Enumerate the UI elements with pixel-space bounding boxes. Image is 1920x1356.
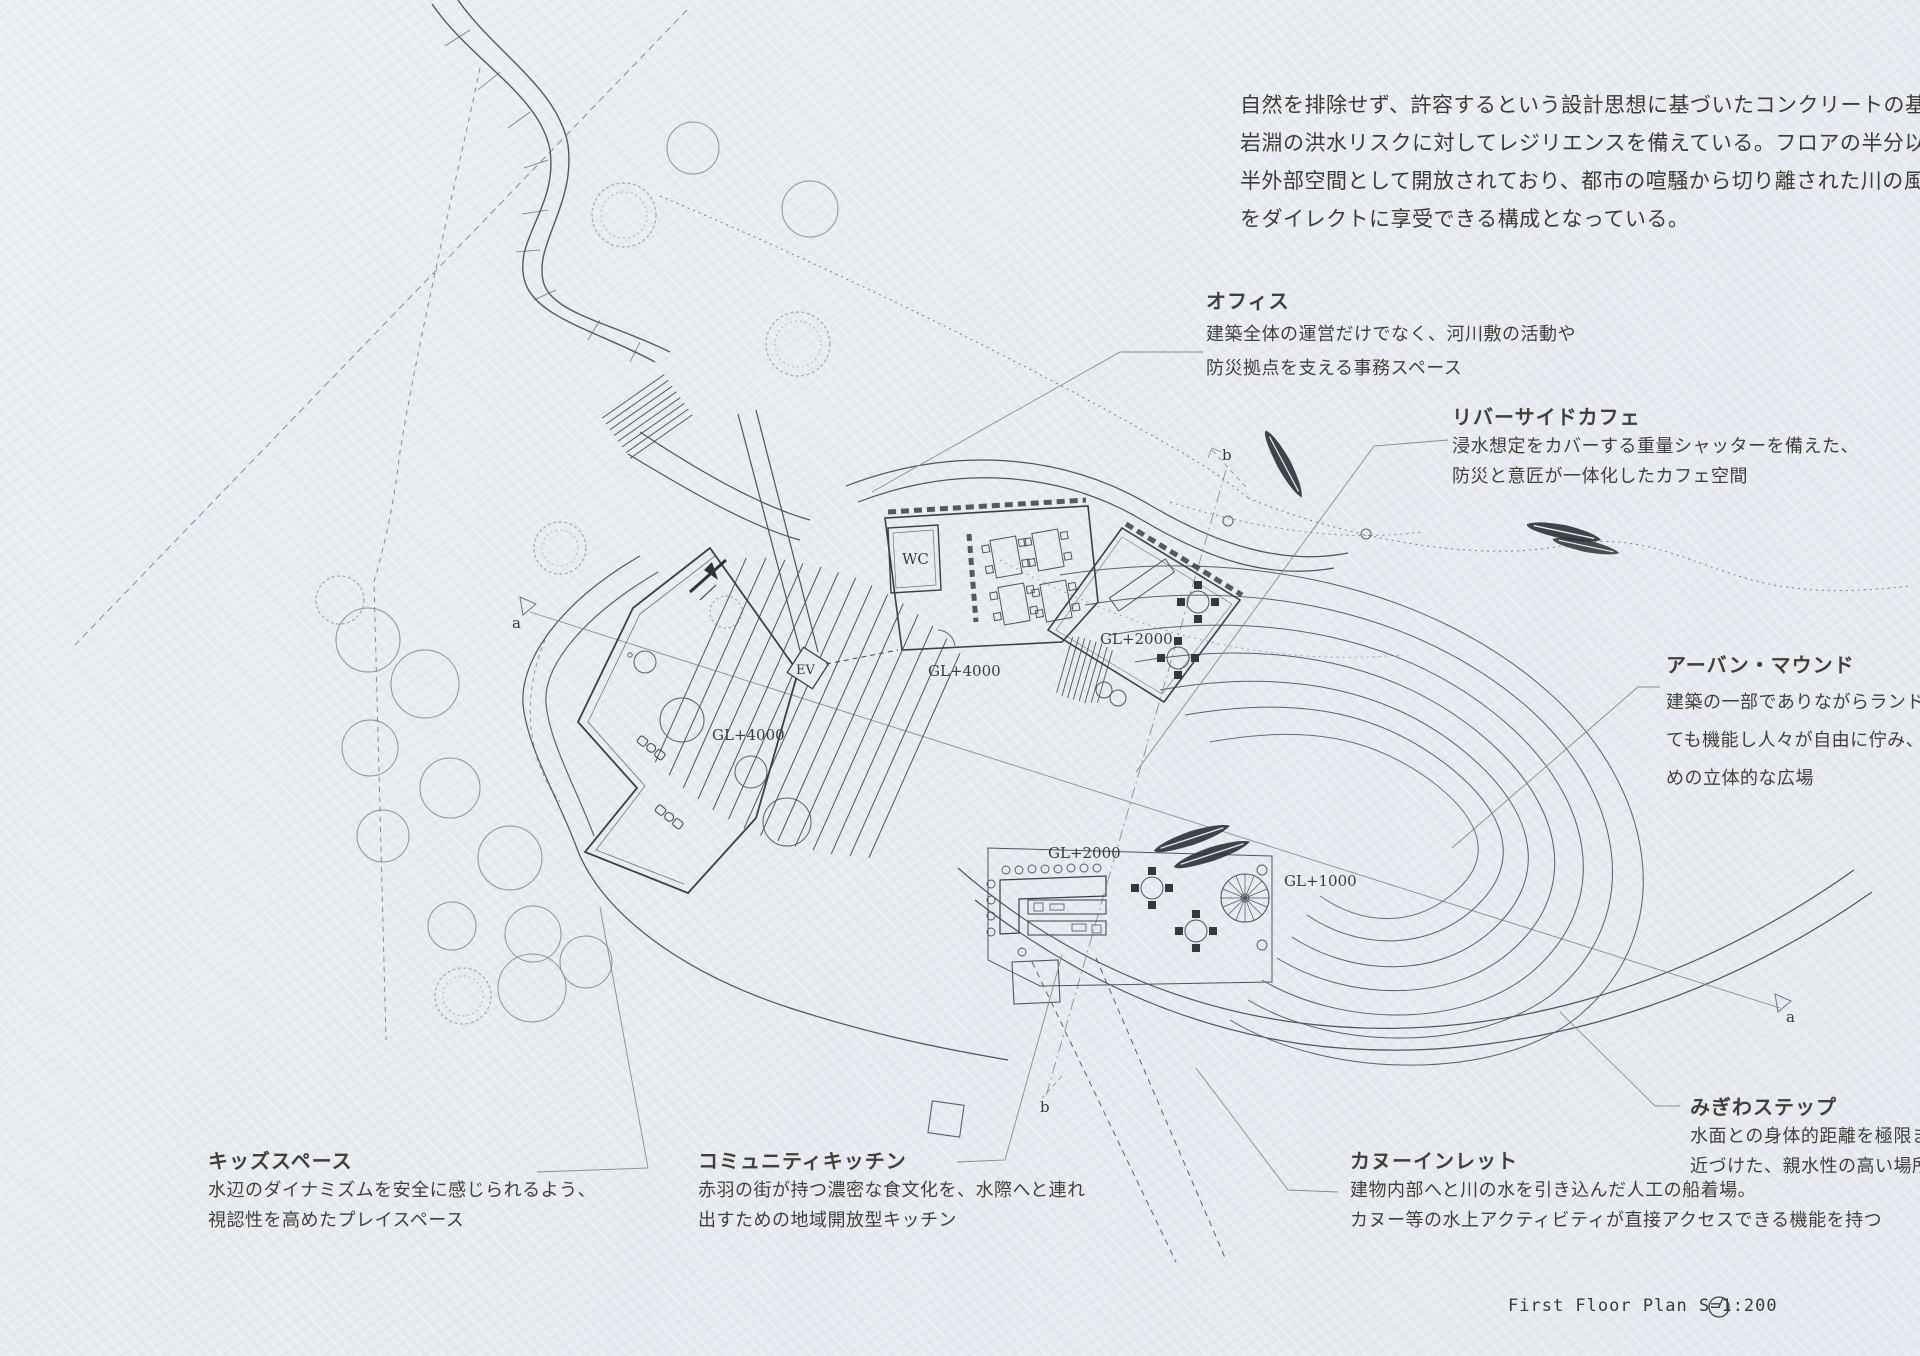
office-room: WC GL+4000 xyxy=(885,500,1098,680)
annotation-community-kitchen-line: 赤羽の街が持つ濃密な食文化を、水際へと連れ xyxy=(698,1176,1086,1206)
presentation-board: a a b b xyxy=(0,0,1920,1356)
trees-outline xyxy=(336,122,838,1022)
leader-office xyxy=(872,352,1203,492)
cafe-room: GL+2000 xyxy=(1048,524,1242,706)
annotation-community-kitchen-title: コミュニティキッチン xyxy=(698,1146,1086,1176)
annotation-canoe-inlet-line: カヌー等の水上アクティビティが直接アクセスできる機能を持つ xyxy=(1350,1206,1882,1236)
annotation-community-kitchen-line: 出すための地域開放型キッチン xyxy=(698,1206,1086,1236)
leader-migiwa xyxy=(1560,1012,1680,1106)
section-b-label-bottom: b xyxy=(1040,1098,1050,1116)
intro-line: 岩淵の洪水リスクに対してレジリエンスを備えている。フロアの半分以上が外部・ xyxy=(1240,124,1920,162)
annotation-urban-mound-line: 建築の一部でありながらランドスケープ xyxy=(1666,684,1920,722)
community-kitchen: GL+2000 GL+1000 xyxy=(987,844,1357,1004)
annotation-riverside-cafe-title: リバーサイドカフェ xyxy=(1452,402,1859,432)
canoes xyxy=(1152,427,1621,873)
gl1000-label: GL+1000 xyxy=(1284,872,1357,890)
gl2000-kitchen-label: GL+2000 xyxy=(1048,844,1121,862)
annotation-riverside-cafe: リバーサイドカフェ 浸水想定をカバーする重量シャッターを備えた、 防災と意匠が一… xyxy=(1452,402,1859,492)
leader-canoe-inlet xyxy=(1196,1068,1338,1192)
annotation-kids-space: キッズスペース 水辺のダイナミズムを安全に感じられるよう、 視認性を高めたプレイ… xyxy=(208,1146,596,1236)
intro-line: 半外部空間として開放されており、都市の喧騒から切り離された川の風や水の音 xyxy=(1240,162,1920,200)
gl2000-cafe-label: GL+2000 xyxy=(1100,630,1173,648)
intro-line: をダイレクトに享受できる構成となっている。 xyxy=(1240,200,1920,238)
gl4000-kids-label: GL+4000 xyxy=(712,726,785,744)
annotation-urban-mound-title: アーバン・マウンド xyxy=(1666,646,1920,684)
annotation-urban-mound-line: ても機能し人々が自由に佇み、川を眺め xyxy=(1666,722,1920,760)
trees-green xyxy=(316,183,830,1024)
annotation-urban-mound: アーバン・マウンド 建築の一部でありながらランドスケープ ても機能し人々が自由に… xyxy=(1666,646,1920,798)
wc-label: WC xyxy=(902,550,929,568)
annotation-migiwa-step-line: 近づけた、親水性の高い場所 xyxy=(1690,1152,1920,1182)
annotation-kids-space-title: キッズスペース xyxy=(208,1146,596,1176)
section-b-label-top: b xyxy=(1222,446,1232,464)
section-line-b: b b xyxy=(1040,446,1246,1116)
annotation-office-title: オフィス xyxy=(1206,284,1576,318)
annotation-office-line: 建築全体の運営だけでなく、河川敷の活動や xyxy=(1206,318,1576,352)
annotation-urban-mound-line: めの立体的な広場 xyxy=(1666,760,1920,798)
annotation-migiwa-step-title: みぎわステップ xyxy=(1690,1092,1920,1122)
section-a-label-left: a xyxy=(512,614,521,632)
annotation-migiwa-step: みぎわステップ 水面との身体的距離を極限まで 近づけた、親水性の高い場所 xyxy=(1690,1092,1920,1182)
annotation-kids-space-line: 水辺のダイナミズムを安全に感じられるよう、 xyxy=(208,1176,596,1206)
section-line-a: a a xyxy=(512,597,1795,1026)
intro-line: 自然を排除せず、許容するという設計思想に基づいたコンクリートの基壇であり、 xyxy=(1240,86,1920,124)
inlet-platform xyxy=(928,1101,964,1137)
annotation-riverside-cafe-line: 防災と意匠が一体化したカフェ空間 xyxy=(1452,462,1859,492)
stream-lines xyxy=(432,0,670,362)
ev-label: EV xyxy=(796,663,815,678)
stairs-upper xyxy=(602,375,692,459)
annotation-office-line: 防災拠点を支える事務スペース xyxy=(1206,352,1576,386)
gl4000-office-label: GL+4000 xyxy=(928,662,1001,680)
elevator: EV xyxy=(787,647,898,688)
drawing-title: First Floor Plan S=1:200 xyxy=(1508,1296,1778,1316)
leader-kids xyxy=(537,907,648,1172)
kids-space: GL+4000 xyxy=(578,548,811,893)
annotation-migiwa-step-line: 水面との身体的距離を極限まで xyxy=(1690,1122,1920,1152)
annotation-community-kitchen: コミュニティキッチン 赤羽の街が持つ濃密な食文化を、水際へと連れ 出すための地域… xyxy=(698,1146,1086,1236)
spiral-stair xyxy=(1221,874,1269,922)
section-a-label-right: a xyxy=(1786,1008,1795,1026)
lamp-dots xyxy=(628,516,1371,657)
annotation-riverside-cafe-line: 浸水想定をカバーする重量シャッターを備えた、 xyxy=(1452,432,1859,462)
annotation-kids-space-line: 視認性を高めたプレイスペース xyxy=(208,1206,596,1236)
intro-paragraph: 自然を排除せず、許容するという設計思想に基づいたコンクリートの基壇であり、 岩淵… xyxy=(1240,86,1920,238)
annotation-office: オフィス 建築全体の運営だけでなく、河川敷の活動や 防災拠点を支える事務スペース xyxy=(1206,284,1576,386)
leader-urban-mound xyxy=(1452,687,1660,848)
